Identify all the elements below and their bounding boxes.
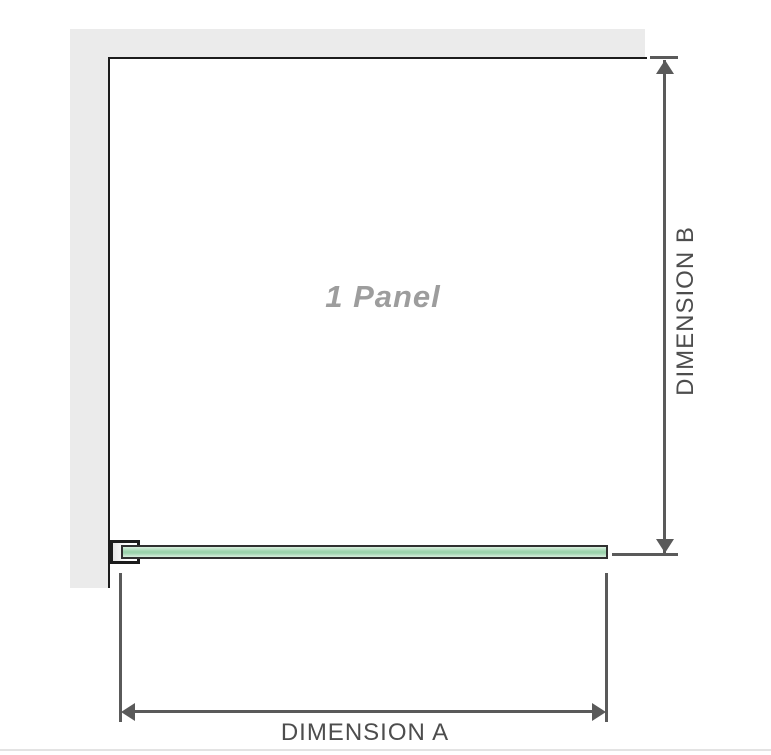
dimension-b-tick-bottom	[612, 553, 678, 556]
glass-panel	[121, 545, 608, 559]
wall-inner-edge-left	[108, 57, 110, 588]
dimension-b-tick-top	[650, 56, 678, 59]
wall-inner-edge-top	[108, 57, 647, 59]
dimension-b-label: DIMENSION B	[672, 226, 698, 396]
dimension-a-arrowhead-left-icon	[121, 703, 135, 721]
dimension-b-arrowhead-up-icon	[656, 60, 674, 74]
bottom-divider	[0, 749, 771, 751]
dimension-a-label: DIMENSION A	[240, 719, 490, 747]
dimension-a-extension-right	[605, 573, 608, 722]
wall-top	[70, 29, 645, 58]
dimension-b-arrowhead-down-icon	[656, 539, 674, 553]
shower-panel-diagram: 1 Panel DIMENSION B DIMENSION A	[0, 0, 771, 755]
dimension-b-line	[663, 60, 666, 553]
dimension-a-arrowhead-right-icon	[592, 703, 606, 721]
panel-label: 1 Panel	[280, 279, 486, 315]
wall-left	[70, 29, 108, 588]
dimension-a-line	[126, 710, 601, 713]
dimension-a-extension-left	[119, 573, 122, 722]
